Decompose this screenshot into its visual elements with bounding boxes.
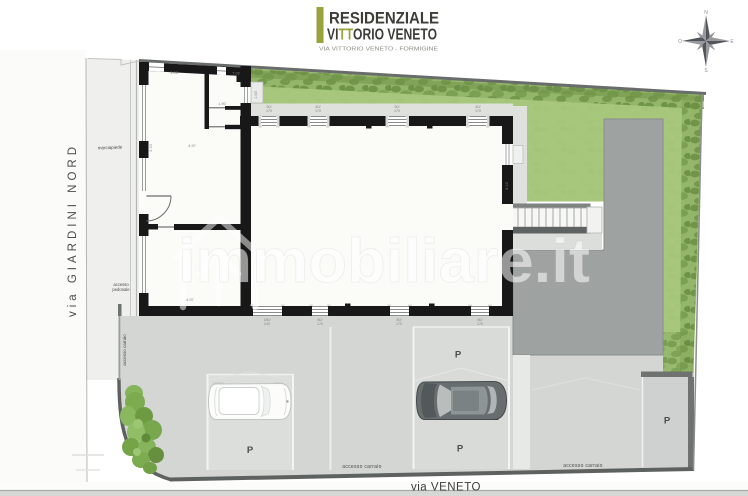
svg-text:RESIDENZIALE: RESIDENZIALE [329, 10, 439, 28]
svg-text:4.97: 4.97 [188, 144, 195, 148]
svg-text:via GIARDINI NORD: via GIARDINI NORD [67, 143, 79, 317]
svg-text:P: P [247, 445, 254, 456]
svg-text:VIA VITTORIO VENETO - FORMIGIN: VIA VITTORIO VENETO - FORMIGINE [319, 47, 438, 53]
svg-text:1.90: 1.90 [218, 102, 225, 106]
svg-text:1.63: 1.63 [254, 91, 258, 98]
svg-text:3.03: 3.03 [170, 71, 177, 75]
svg-text:240: 240 [264, 322, 270, 326]
svg-text:VITTORIO VENETO: VITTORIO VENETO [327, 27, 437, 44]
svg-text:accesso carraio: accesso carraio [342, 464, 382, 470]
svg-text:170: 170 [477, 322, 483, 326]
svg-text:7.02: 7.02 [232, 72, 239, 76]
svg-text:P: P [455, 350, 462, 361]
svg-text:O: O [678, 39, 682, 45]
svg-text:170: 170 [475, 109, 481, 113]
svg-text:via VENETO: via VENETO [411, 482, 481, 494]
svg-text:accesso carraio: accesso carraio [563, 463, 603, 469]
svg-text:E: E [730, 39, 734, 45]
svg-text:170: 170 [396, 322, 402, 326]
svg-text:S: S [704, 68, 708, 74]
svg-text:immobiliare.it: immobiliare.it [178, 227, 590, 296]
svg-text:N: N [704, 10, 708, 16]
svg-text:marciapiede: marciapiede [98, 145, 123, 151]
svg-text:170: 170 [317, 322, 323, 326]
svg-text:4.97: 4.97 [186, 298, 193, 302]
svg-text:170: 170 [394, 109, 400, 113]
svg-text:pedonale: pedonale [112, 287, 130, 292]
svg-text:170: 170 [315, 109, 321, 113]
svg-text:accesso carraio: accesso carraio [122, 334, 127, 366]
svg-text:170: 170 [266, 109, 272, 113]
svg-text:2.10: 2.10 [149, 144, 153, 151]
svg-text:P: P [664, 416, 671, 427]
svg-text:6.10: 6.10 [505, 182, 509, 189]
svg-text:P: P [457, 444, 464, 455]
